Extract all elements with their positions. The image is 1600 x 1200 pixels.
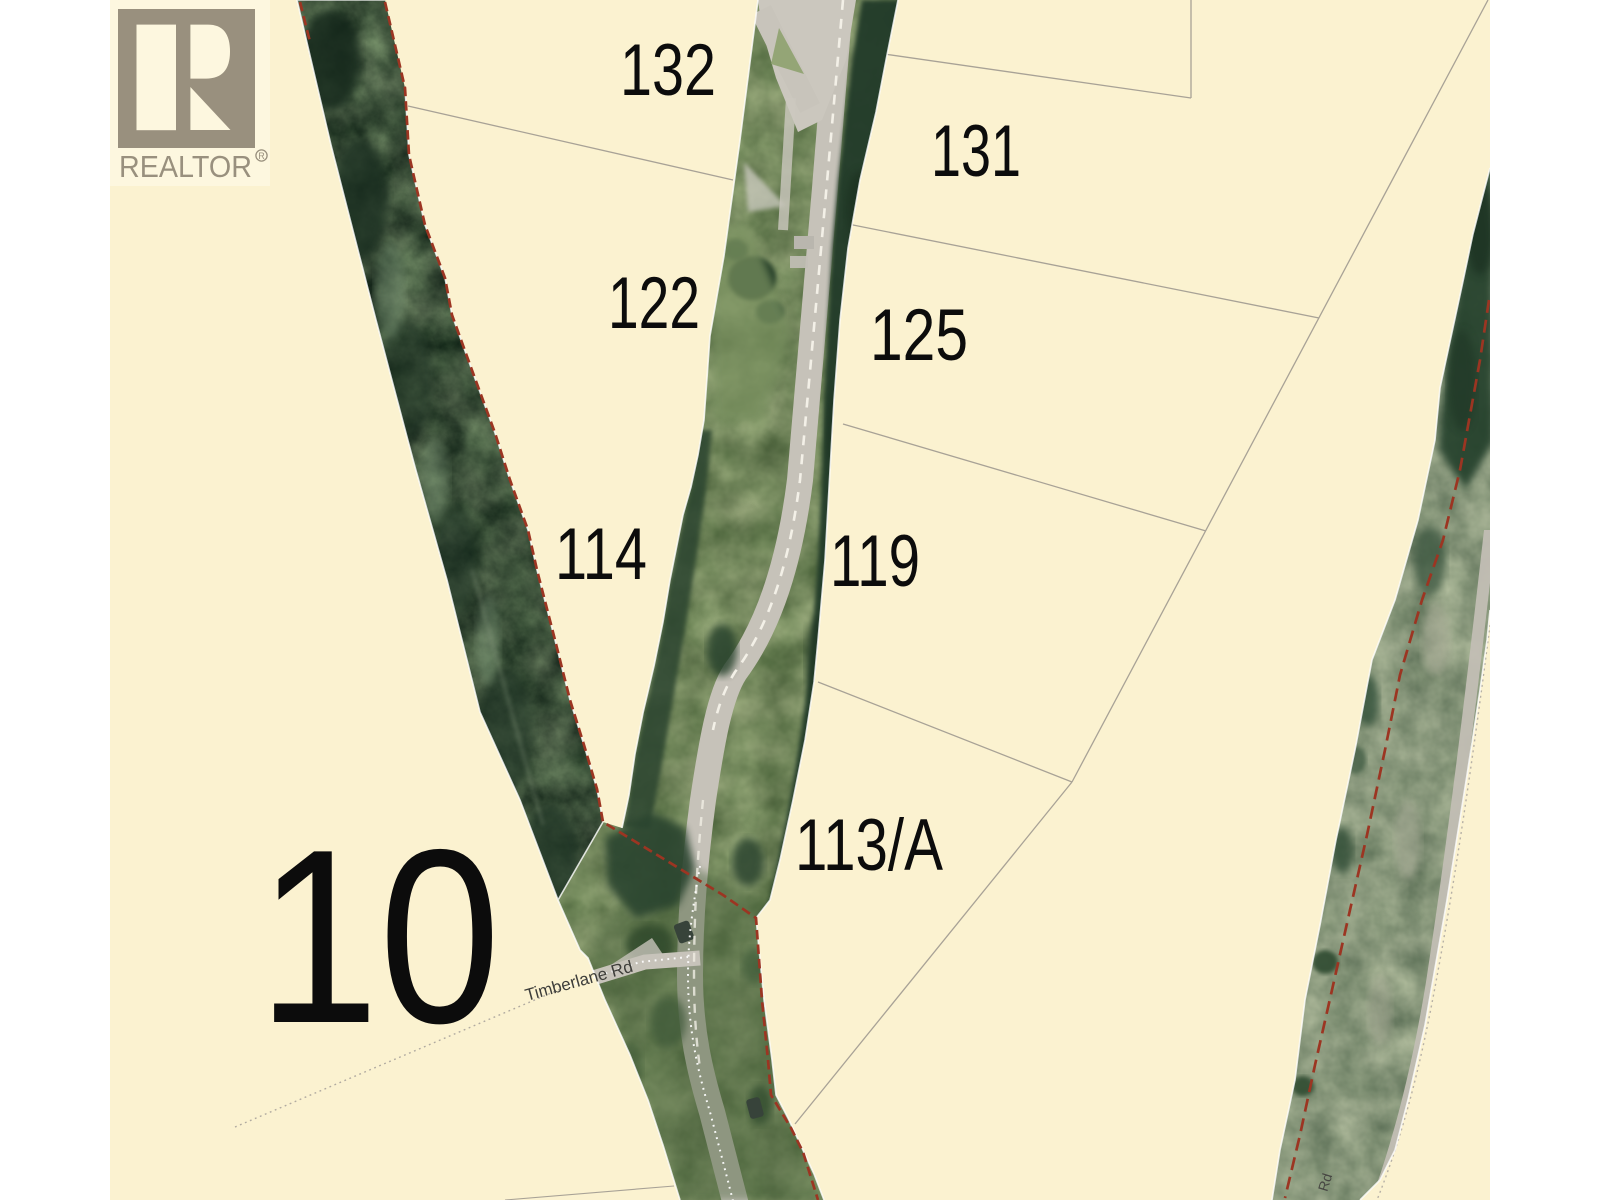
- svg-text:131: 131: [931, 111, 1021, 192]
- svg-text:125: 125: [870, 295, 968, 376]
- svg-text:REALTOR: REALTOR: [119, 150, 252, 184]
- svg-text:114: 114: [555, 514, 647, 595]
- svg-text:10: 10: [258, 797, 501, 1075]
- svg-text:122: 122: [608, 263, 700, 344]
- svg-text:113/A: 113/A: [795, 805, 943, 886]
- svg-text:R: R: [258, 151, 265, 161]
- svg-text:132: 132: [620, 30, 716, 111]
- svg-text:119: 119: [830, 521, 920, 602]
